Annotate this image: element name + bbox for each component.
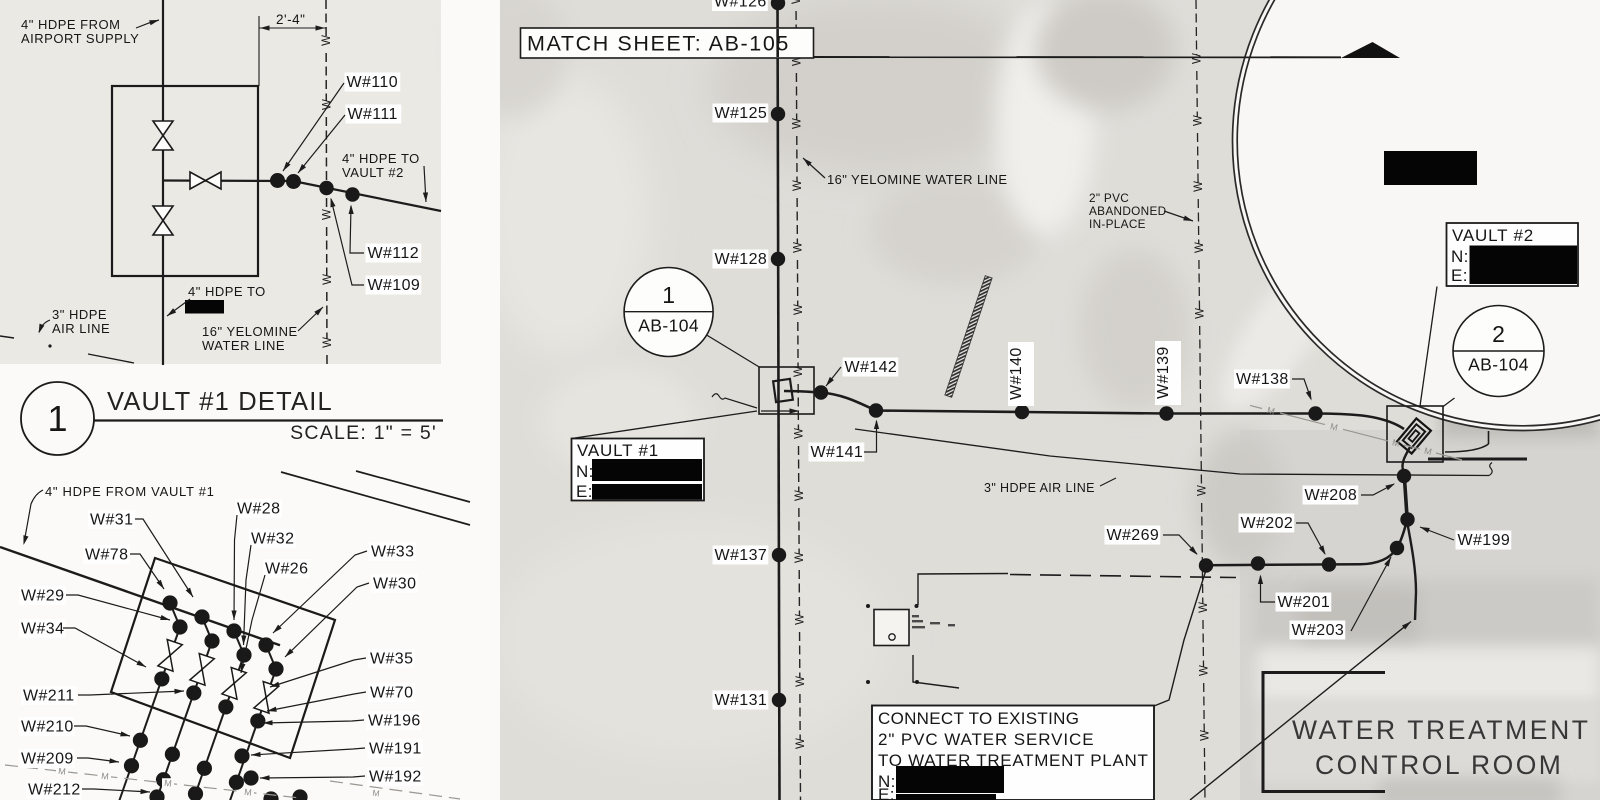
svg-text:3" HDPE: 3" HDPE: [52, 307, 107, 322]
svg-text:W#141: W#141: [811, 444, 864, 461]
svg-text:AIRPORT SUPPLY: AIRPORT SUPPLY: [21, 31, 139, 46]
svg-text:N:: N:: [576, 462, 594, 481]
svg-text:W#212: W#212: [28, 782, 81, 799]
svg-text:W#196: W#196: [368, 713, 421, 730]
svg-text:2'-4": 2'-4": [276, 12, 305, 27]
svg-text:WATER TREATMENT: WATER TREATMENT: [1292, 715, 1591, 745]
svg-text:W#209: W#209: [21, 751, 74, 768]
svg-text:W#111: W#111: [348, 106, 398, 123]
svg-text:W#29: W#29: [21, 588, 64, 605]
svg-text:W: W: [1199, 730, 1211, 741]
svg-text:W#139: W#139: [1155, 346, 1172, 399]
svg-text:W: W: [1197, 485, 1209, 496]
svg-text:2: 2: [1492, 321, 1505, 347]
svg-text:W: W: [1199, 665, 1211, 676]
svg-text:W: W: [321, 35, 333, 46]
svg-text:2" PVC WATER SERVICE: 2" PVC WATER SERVICE: [878, 730, 1094, 749]
svg-text:W: W: [1192, 53, 1204, 64]
svg-text:WATER LINE: WATER LINE: [202, 338, 285, 353]
svg-text:W#112: W#112: [368, 245, 420, 262]
svg-text:W#28: W#28: [237, 501, 280, 518]
svg-text:W#138: W#138: [1236, 371, 1289, 388]
svg-text:W#34: W#34: [21, 621, 64, 638]
svg-text:W: W: [792, 118, 804, 129]
svg-text:E:: E:: [878, 785, 895, 800]
svg-text:AB-104: AB-104: [638, 316, 699, 336]
svg-text:W: W: [795, 676, 807, 687]
svg-text:W#191: W#191: [369, 741, 422, 758]
svg-text:W#201: W#201: [1278, 594, 1331, 611]
svg-text:W#70: W#70: [370, 685, 413, 702]
svg-text:3" HDPE AIR LINE: 3" HDPE AIR LINE: [984, 481, 1095, 495]
svg-text:VAULT #2: VAULT #2: [1452, 226, 1534, 245]
svg-text:W#126: W#126: [714, 0, 767, 11]
svg-text:IN-PLACE: IN-PLACE: [1089, 217, 1146, 231]
svg-text:W#199: W#199: [1458, 532, 1511, 549]
svg-text:W#35: W#35: [370, 651, 413, 668]
svg-text:W: W: [322, 274, 334, 285]
svg-text:4" HDPE FROM VAULT #1: 4" HDPE FROM VAULT #1: [45, 484, 215, 499]
svg-text:W#30: W#30: [373, 576, 416, 593]
svg-text:CONNECT TO EXISTING: CONNECT TO EXISTING: [878, 709, 1079, 728]
svg-text:AIR LINE: AIR LINE: [52, 321, 110, 336]
svg-text:M: M: [372, 788, 380, 799]
svg-text:SCALE: 1" = 5': SCALE: 1" = 5': [290, 422, 437, 444]
svg-text:W: W: [791, 0, 803, 4]
svg-text:AB-104: AB-104: [1468, 355, 1529, 375]
svg-text:E:: E:: [576, 482, 593, 501]
svg-text:ABANDONED: ABANDONED: [1089, 204, 1166, 218]
svg-text:4" HDPE TO: 4" HDPE TO: [342, 151, 420, 166]
svg-text:W: W: [1195, 308, 1207, 319]
svg-text:W#203: W#203: [1292, 622, 1345, 639]
svg-text:N:: N:: [1451, 247, 1469, 266]
svg-text:M: M: [101, 771, 110, 782]
svg-text:W#33: W#33: [371, 544, 414, 561]
svg-text:W#137: W#137: [715, 547, 768, 564]
svg-text:4" HDPE FROM: 4" HDPE FROM: [21, 17, 120, 32]
svg-text:W#142: W#142: [845, 359, 898, 376]
svg-text:16" YELOMINE WATER LINE: 16" YELOMINE WATER LINE: [827, 172, 1007, 187]
svg-text:W#192: W#192: [369, 769, 422, 786]
svg-text:W#211: W#211: [23, 688, 75, 705]
svg-text:2" PVC: 2" PVC: [1089, 191, 1129, 205]
svg-text:1: 1: [47, 398, 67, 439]
svg-text:M: M: [244, 787, 253, 798]
svg-text:VAULT #2: VAULT #2: [342, 165, 404, 180]
svg-text:W: W: [1194, 242, 1206, 253]
svg-text:CONTROL ROOM: CONTROL ROOM: [1315, 750, 1563, 780]
svg-text:1: 1: [662, 282, 675, 308]
svg-text:W#125: W#125: [715, 105, 768, 122]
svg-text:W: W: [792, 242, 804, 253]
svg-text:W: W: [322, 209, 334, 220]
svg-text:W#269: W#269: [1107, 527, 1160, 544]
svg-text:W: W: [1193, 181, 1205, 192]
svg-text:W#208: W#208: [1305, 487, 1358, 504]
svg-text:W#140: W#140: [1008, 347, 1025, 400]
svg-text:W: W: [795, 614, 807, 625]
svg-text:W#78: W#78: [85, 547, 128, 564]
svg-text:W: W: [794, 490, 806, 501]
svg-text:W: W: [322, 337, 334, 348]
svg-text:W#210: W#210: [21, 719, 74, 736]
svg-text:W: W: [793, 428, 805, 439]
svg-text:W#128: W#128: [715, 251, 768, 268]
svg-text:M: M: [164, 778, 173, 789]
svg-text:W#31: W#31: [90, 512, 133, 529]
svg-text:W: W: [1192, 115, 1204, 126]
svg-text:W#26: W#26: [265, 561, 308, 578]
svg-text:16" YELOMINE: 16" YELOMINE: [202, 324, 298, 339]
svg-text:VAULT #1: VAULT #1: [577, 441, 659, 460]
svg-text:W: W: [793, 304, 805, 315]
svg-text:W#110: W#110: [347, 74, 399, 91]
svg-text:MATCH SHEET: AB-105: MATCH SHEET: AB-105: [527, 32, 790, 56]
svg-text:W#32: W#32: [251, 531, 294, 548]
svg-text:VAULT #1 DETAIL: VAULT #1 DETAIL: [107, 388, 333, 416]
svg-text:E:: E:: [1451, 266, 1468, 285]
svg-text:W#131: W#131: [715, 692, 768, 709]
svg-text:W: W: [795, 738, 807, 749]
svg-text:W#109: W#109: [368, 277, 421, 294]
svg-text:W: W: [794, 552, 806, 563]
svg-text:W#202: W#202: [1241, 515, 1294, 532]
svg-text:W: W: [1198, 602, 1210, 613]
svg-text:4" HDPE TO: 4" HDPE TO: [188, 284, 266, 299]
svg-text:W: W: [792, 180, 804, 191]
